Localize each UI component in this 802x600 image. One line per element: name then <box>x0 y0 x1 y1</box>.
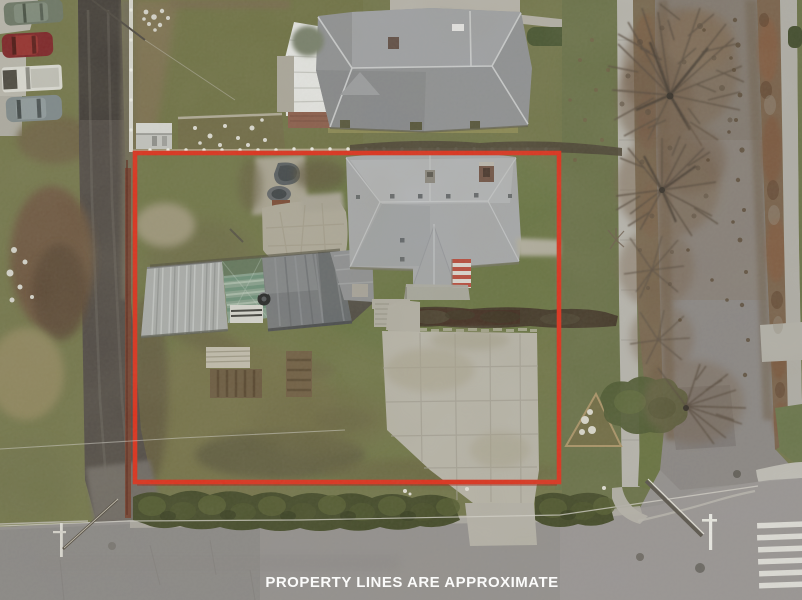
svg-text:PROPERTY LINES ARE APPROXIMATE: PROPERTY LINES ARE APPROXIMATE <box>265 574 558 591</box>
